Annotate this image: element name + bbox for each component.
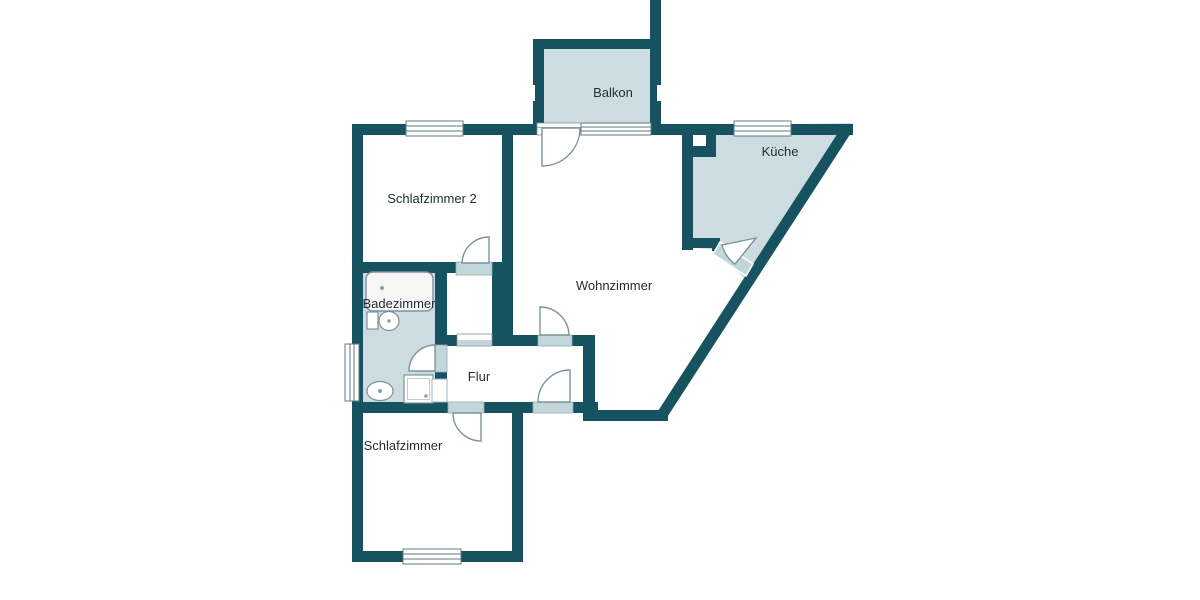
wall-balkon-left [533, 39, 544, 130]
room-label-balkon: Balkon [593, 85, 633, 100]
floorplan-canvas: Balkon Küche Schlafzimmer 2 Wohnzimmer B… [0, 0, 1200, 600]
door-arc-wohnzimmer [540, 307, 569, 335]
wall-wohnzimmer-bottom [583, 410, 668, 421]
window-kueche [734, 121, 791, 136]
room-label-schlafzimmer: Schlafzimmer [364, 438, 443, 453]
wall-duct [492, 262, 513, 346]
door-arc-schlafzimmer [453, 413, 481, 441]
balkon-parapet-notch-right [657, 85, 662, 101]
shower-icon [404, 375, 433, 403]
wall-left [352, 124, 363, 562]
threshold-wohnzimmer-door [538, 335, 572, 346]
opening-corridor-sill [458, 340, 492, 346]
wall-schlafzimmer-right [512, 402, 523, 562]
wall-kueche-left [682, 124, 693, 250]
sink-icon [367, 312, 399, 331]
window-balkon [581, 123, 651, 135]
door-arc-balkon [542, 128, 580, 166]
room-label-flur: Flur [468, 369, 491, 384]
balkon-parapet-notch-left [530, 85, 535, 101]
threshold-entrance-door [533, 402, 573, 413]
threshold-schlafzimmer2-door [456, 262, 492, 275]
window-schlafzimmer2 [406, 121, 463, 136]
wall-schlafzimmer2-right [502, 124, 513, 273]
wall-balkon-top [533, 39, 661, 49]
door-arc-schlafzimmer2 [462, 237, 489, 263]
room-label-badezimmer: Badezimmer [363, 296, 437, 311]
washer-icon [432, 379, 447, 402]
threshold-badezimmer-door [435, 345, 447, 372]
wall-balkon-right-riser [650, 0, 661, 135]
threshold-schlafzimmer-door [448, 402, 484, 413]
floorplan-svg: Balkon Küche Schlafzimmer 2 Wohnzimmer B… [0, 0, 1200, 600]
toilet-icon [367, 382, 393, 401]
wall-kueche-notch-bottom [682, 146, 716, 157]
room-label-wohnzimmer: Wohnzimmer [576, 278, 653, 293]
room-label-schlafzimmer2: Schlafzimmer 2 [387, 191, 477, 206]
door-arc-entrance [538, 370, 570, 402]
room-label-kueche: Küche [762, 144, 799, 159]
kueche-duct-notch [693, 135, 706, 146]
window-schlafzimmer [403, 549, 461, 564]
window-badezimmer [345, 344, 359, 401]
